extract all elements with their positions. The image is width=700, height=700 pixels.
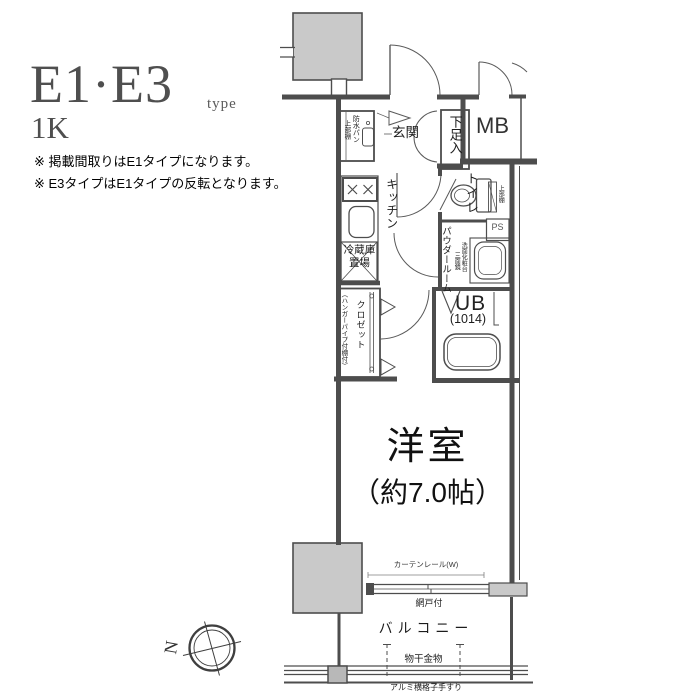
toilet-shelf-label: 上部棚 [497, 185, 503, 203]
screen-door-label: 網戸付 [374, 599, 484, 608]
compass-icon [183, 622, 241, 676]
shoe-box-label: 下足入 [448, 115, 462, 154]
plan-note-1: ※ 掲載間取りはE1タイプになります。 [34, 155, 258, 169]
unit-bath-size-label: (1014) [432, 313, 504, 326]
main-room-size-label: （約7.0帖） [340, 478, 515, 507]
handrail-label: アルミ横格子手すり [340, 684, 512, 692]
curtain-rail-label: カーテンレール(W) [368, 561, 484, 569]
fridge-label-line1: 冷蔵庫 [341, 245, 378, 256]
main-room-label: 洋室 [340, 428, 515, 468]
drying-fixture-label: 物干金物 [387, 655, 460, 665]
closet-label: クロゼット [355, 300, 364, 350]
meter-box-label: MB [476, 114, 509, 137]
balcony-label: バルコニー [340, 621, 512, 636]
window-band [366, 583, 527, 596]
laundry-shelf-label: 上部棚 [342, 120, 349, 140]
powder-room-label: パウダールーム [440, 226, 450, 293]
fridge-label-line2: 置場 [341, 258, 378, 269]
entrance-label: 玄関 [392, 126, 419, 140]
column-notch [279, 48, 295, 58]
vanity-label: 洗面化粧台 [460, 242, 466, 272]
laundry-pan-label: 防水パン [352, 115, 359, 143]
plan-title-type-suffix: type [207, 97, 237, 113]
structural-columns [293, 13, 362, 613]
plan-note-2: ※ E3タイプはE1タイプの反転となります。 [34, 177, 287, 191]
kitchen-label: キッチン [385, 178, 398, 230]
vanity-mirror-label: 三面鏡 [453, 252, 459, 270]
layout-type-label: 1K [31, 112, 69, 145]
curtain-rail-line [368, 572, 484, 578]
vanity-fixture [470, 238, 509, 283]
plan-title: E1·E3 [30, 56, 173, 113]
toilet-label: トイレ [464, 172, 477, 216]
closet-note-label: （ハンガーパイプ付棚付） [339, 291, 346, 369]
pipe-space-label: PS [486, 223, 509, 232]
floor-plan-page: E1·E3 type 1K ※ 掲載間取りはE1タイプになります。 ※ E3タイ… [0, 0, 700, 700]
